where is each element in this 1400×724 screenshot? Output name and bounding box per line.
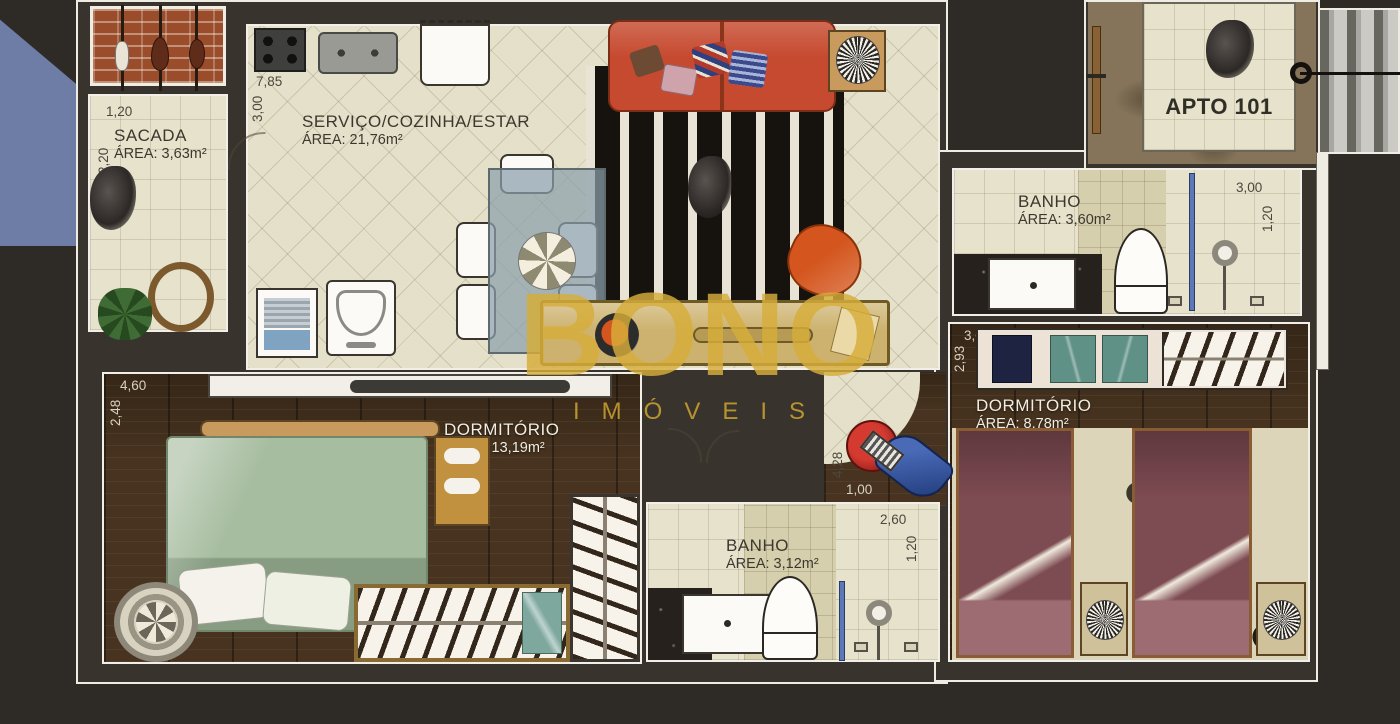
entrance-door-leaf [1092, 26, 1101, 134]
table-centerpiece-flower [518, 232, 576, 290]
room-area: ÁREA: 3,63m² [114, 146, 207, 163]
nightstand [1256, 582, 1306, 656]
room-banho-suite: BANHO ÁREA: 3,60m² 3,00 1,20 [952, 168, 1302, 316]
washboard [264, 298, 310, 328]
dimension-label: 3,00 [1236, 180, 1262, 195]
washer-lid [336, 290, 386, 336]
dimension-label: 2,60 [880, 512, 906, 527]
toilet-seam [764, 632, 816, 634]
refrigerator [420, 24, 490, 86]
room-label-banho-suite: BANHO ÁREA: 3,60m² [1018, 192, 1111, 228]
floor-drain-icon [1168, 296, 1182, 306]
nightstand-lamp [1086, 600, 1124, 640]
room-label-sacada: SACADA ÁREA: 3,63m² [114, 126, 207, 162]
wardrobe-hangers [354, 584, 570, 662]
dimension-label: 2,48 [108, 400, 123, 426]
room-area: ÁREA: 21,76m² [302, 132, 530, 149]
dimension-label: 7,85 [256, 74, 282, 89]
person-figure [90, 166, 136, 230]
nightstand-lamp [1263, 600, 1301, 640]
dimension-label: 2,93 [952, 346, 967, 372]
faucet-icon [724, 620, 731, 627]
dimension-label: 3,00 [250, 96, 265, 122]
grill-tool [115, 41, 129, 71]
hanging-chair [148, 262, 214, 332]
unit-label: APTO 101 [1144, 94, 1294, 120]
floor-drain-icon [904, 642, 918, 652]
shower-stem [1223, 266, 1226, 310]
tv-console [540, 300, 890, 366]
floor-drain-icon [1250, 296, 1264, 306]
room-dormitorio-casal: 4,60 2,48 DORMITÓRIO ÁREA: 13,19m² [102, 372, 642, 664]
single-bed [1132, 428, 1252, 658]
shoes-pair [444, 448, 480, 464]
folded-garment [522, 592, 562, 654]
sofa [608, 20, 836, 112]
room-servico-cozinha-estar: 7,85 3,00 SERVIÇO/COZINHA/ESTAR ÁREA: 21… [246, 24, 940, 370]
potted-plant [98, 288, 152, 340]
barbecue-brick-niche [90, 6, 226, 86]
vanity-sink [988, 258, 1076, 310]
meat-on-skewer [189, 39, 205, 69]
kitchen-sink [318, 32, 398, 74]
vanity-sink [682, 594, 770, 654]
closet-vertical [570, 494, 640, 662]
meat-on-skewer [151, 37, 169, 71]
exterior-wall-strip [1316, 152, 1329, 370]
room-name: BANHO [1018, 192, 1111, 212]
hanger-rail [1162, 332, 1284, 386]
dimension-label: 4,60 [120, 378, 146, 393]
remote-tray [693, 327, 813, 343]
single-bed [956, 428, 1074, 658]
dimension-label: 4,28 [830, 452, 845, 478]
shirt-navy [992, 335, 1032, 383]
tv-shelf [208, 374, 612, 398]
sofa-pillow [728, 50, 768, 89]
shoe-bench [434, 436, 490, 526]
round-rug [114, 582, 198, 662]
shirt-teal [1050, 335, 1096, 383]
dimension-label: 1,20 [1260, 206, 1275, 232]
person-figure [1206, 20, 1254, 78]
room-banho-social: BANHO ÁREA: 3,12m² 2,60 1,20 [646, 502, 940, 662]
sofa-pillow [629, 44, 666, 78]
decor-bowl [595, 313, 639, 357]
washing-machine [326, 280, 396, 356]
handrail-post-icon [1290, 62, 1312, 84]
room-name: SERVIÇO/COZINHA/ESTAR [302, 112, 530, 132]
room-sacada: 1,20 2,20 SACADA ÁREA: 3,63m² [88, 94, 228, 332]
dimension-label: 1,00 [846, 482, 872, 497]
rug-flower-motif [136, 602, 176, 642]
shirt-teal [1102, 335, 1148, 383]
hall-tile-island: APTO 101 [1142, 2, 1296, 152]
shoes-pair [444, 478, 480, 494]
side-table [828, 30, 886, 92]
door-handle [1086, 74, 1106, 78]
dimension-label: 1,20 [904, 536, 919, 562]
shower-glass-partition [840, 582, 844, 660]
room-area: ÁREA: 3,60m² [1018, 212, 1111, 229]
dimension-label: 1,20 [106, 104, 132, 119]
wardrobe [976, 328, 1288, 390]
television [350, 380, 570, 393]
shower-stem [877, 626, 880, 660]
shower-head-icon [866, 600, 892, 626]
sofa-pillow [691, 41, 731, 79]
washer-controls [346, 342, 376, 348]
room-label-servico: SERVIÇO/COZINHA/ESTAR ÁREA: 21,76m² [302, 112, 530, 148]
room-dormitorio-solteiro: 3,00 2,93 DORMITÓRIO ÁREA: 8,78m² [948, 322, 1310, 662]
sofa-pillow [660, 63, 698, 96]
laundry-tank [256, 288, 318, 358]
stove-cooktop [254, 28, 306, 72]
room-name: BANHO [726, 536, 819, 556]
room-label-dormitorio-solteiro: DORMITÓRIO ÁREA: 8,78m² [976, 396, 1092, 432]
room-label-banho-social: BANHO ÁREA: 3,12m² [726, 536, 819, 572]
shower-head-icon [1212, 240, 1238, 266]
toilet-seam [1116, 285, 1166, 287]
room-area: ÁREA: 3,12m² [726, 556, 819, 573]
floor-plan-canvas: 1,20 2,20 SACADA ÁREA: 3,63m² 7,85 3,00 … [0, 0, 1400, 724]
stair-handrail [1300, 72, 1400, 75]
floor-drain-icon [854, 642, 868, 652]
tank-basin [264, 330, 310, 350]
table-lamp [836, 36, 880, 84]
room-name: SACADA [114, 126, 207, 146]
shower-glass-partition [1190, 174, 1194, 310]
stairwell [1318, 8, 1400, 154]
bed-pillow [262, 570, 352, 631]
room-name: DORMITÓRIO [976, 396, 1092, 416]
nightstand [1080, 582, 1128, 656]
faucet-icon [1030, 282, 1037, 289]
magazine [830, 307, 880, 361]
